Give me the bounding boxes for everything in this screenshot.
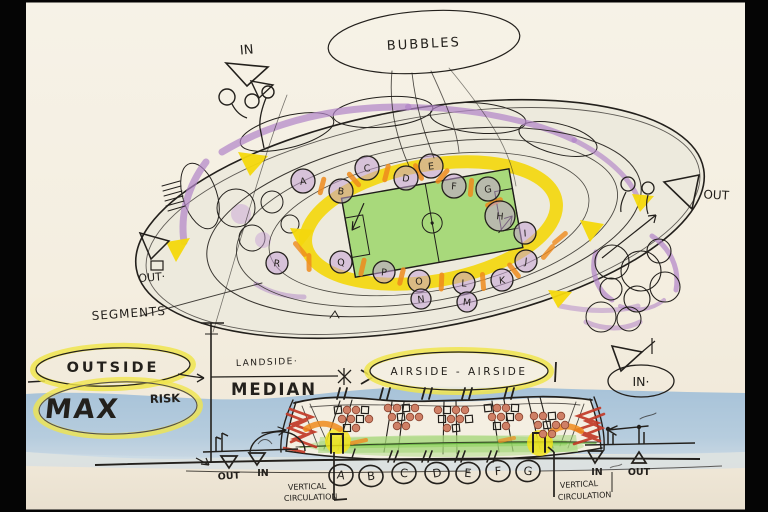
plan-seat-lower: M <box>457 292 477 312</box>
seat-bubble <box>415 413 423 421</box>
right-bar <box>745 0 768 512</box>
airside-label: AIRSIDE - AIRSIDE <box>390 366 527 378</box>
orange-dash <box>482 275 483 289</box>
plan-seat-bottom: K <box>491 269 513 291</box>
left-bar <box>0 0 26 512</box>
in-bottom-right-label: IN <box>591 467 603 478</box>
tick-mark <box>555 362 556 382</box>
out-right-label: OUT <box>703 187 730 202</box>
seat-letter: F <box>451 181 457 192</box>
orange-dash <box>385 166 388 180</box>
seat-bubble <box>561 421 569 429</box>
seat-letter: O <box>415 276 424 288</box>
seat-letter: H <box>496 211 504 223</box>
plan-seat-top: F <box>442 174 466 198</box>
vc-left-label2: CIRCULATION <box>284 492 338 503</box>
seat-bubble <box>365 415 373 423</box>
max-label: MAX <box>43 394 121 425</box>
seat-bubble <box>493 404 501 412</box>
out-bottom-left-label: OUT <box>217 470 240 482</box>
seat-bubble <box>347 415 355 423</box>
plan-seat-top: D <box>394 166 418 190</box>
median-label: MEDIAN <box>231 380 317 399</box>
plan-seat-lower: N <box>411 289 431 309</box>
seat-bubble <box>488 413 496 421</box>
seat-bubble <box>384 404 392 412</box>
seat-bubble <box>515 413 523 421</box>
seat-bubble <box>352 424 360 432</box>
in-right-label: IN· <box>632 374 649 389</box>
seat-bubble <box>456 415 464 423</box>
seat-bubble <box>406 413 414 421</box>
seat-bubble <box>539 430 547 438</box>
seat-bubble <box>497 413 505 421</box>
in-top-label: IN <box>239 42 254 58</box>
plan-seat-top: C <box>355 156 379 180</box>
airside-callout: AIRSIDE - AIRSIDE <box>367 350 551 392</box>
seat-bubble <box>502 422 510 430</box>
seat-bubble <box>393 422 401 430</box>
orange-dash <box>320 179 324 193</box>
plan-seat-bottom: P <box>373 261 395 283</box>
risk-label: RISK <box>150 391 182 406</box>
seat-letter: B <box>337 186 345 198</box>
seat-bubble <box>388 413 396 421</box>
seat-bubble <box>534 421 542 429</box>
seat-letter: C <box>363 163 371 175</box>
seat-bubble <box>461 406 469 414</box>
plan-seat-top: G <box>476 177 500 201</box>
seat-letter: N <box>417 294 425 306</box>
orange-dash <box>400 270 403 284</box>
outside-label: OUTSIDE <box>67 360 160 376</box>
plan-seat-top: B <box>329 179 353 203</box>
seat-bubble <box>352 406 360 414</box>
seat-bubble <box>447 415 455 423</box>
plan-seat-bottom: R <box>266 252 288 274</box>
seat-bubble <box>411 404 419 412</box>
out-left-label: OUT· <box>138 270 166 285</box>
seat-bubble <box>452 406 460 414</box>
plan-seat-top: A <box>291 169 315 193</box>
seat-bubble <box>530 412 538 420</box>
plan-seat-top: E <box>419 154 443 178</box>
top-bar <box>0 0 768 3</box>
seat-bubble <box>434 406 442 414</box>
seat-letter: D <box>401 173 410 185</box>
orange-dash <box>470 181 471 195</box>
seat-bubble <box>343 406 351 414</box>
seat-bubble <box>552 421 560 429</box>
plan-seat-bottom: Q <box>330 251 352 273</box>
seat-letter: E <box>428 161 435 173</box>
seat-bubble <box>539 412 547 420</box>
plan-seat-bottom: L <box>453 272 475 294</box>
plan-seat-right: I <box>514 222 536 244</box>
seat-bubble <box>557 412 565 420</box>
plan-seat-bottom: J <box>515 250 537 272</box>
seat-letter: Q <box>337 257 346 269</box>
sketch-photo: ABCDEFGHIRQPOLKJNM BUBBLES IN OUT· <box>0 0 768 512</box>
section-letter: C <box>400 466 409 481</box>
orange-dash <box>361 260 364 274</box>
seat-bubble <box>443 424 451 432</box>
vc-left-label1: VERTICAL <box>288 482 327 492</box>
section-letter: E <box>464 466 472 481</box>
seat-bubble <box>338 415 346 423</box>
plan-seat-top: H <box>485 201 515 231</box>
in-bottom-left-label: IN <box>257 468 269 479</box>
out-bottom-right-label: OUT <box>628 467 651 478</box>
seat-bubble <box>548 430 556 438</box>
seat-bubble <box>393 404 401 412</box>
seat-bubble <box>502 404 510 412</box>
orange-dash <box>441 275 442 289</box>
section-letter: F <box>494 464 502 478</box>
section-letter: G <box>523 464 534 479</box>
section-letter: B <box>366 469 375 484</box>
seat-bubble <box>402 422 410 430</box>
seat-letter: M <box>462 297 471 309</box>
